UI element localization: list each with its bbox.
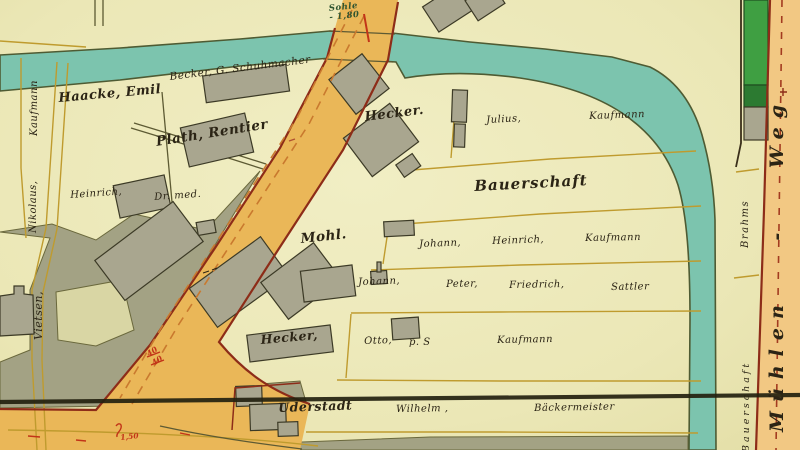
label-bauerschaft-right: Bauerschaft	[742, 361, 752, 450]
label-friedrich-b: Friedrich,	[509, 280, 565, 291]
label-peter-b: Peter,	[446, 279, 478, 290]
label-uderstadt: Uderstadt	[278, 398, 353, 414]
label-wilhelm: Wilhelm ,	[396, 404, 449, 415]
map-drawing	[0, 0, 800, 450]
label-kaufmann-c: Kaufmann	[497, 335, 553, 346]
waterway-depth-note: Sohle - 1,80	[328, 2, 360, 23]
label-nikolaus-left: Nikolaus,	[29, 181, 40, 233]
label-muehlenweg: Mühlen - Weg	[768, 96, 788, 432]
label-kaufmann-top: Kaufmann	[589, 110, 645, 122]
label-johann-a: Johann,	[419, 239, 461, 251]
map-image: Sohle - 1,80 Haacke, Emil Becker, G. Sch…	[0, 0, 800, 450]
label-kaufmann-a: Kaufmann	[585, 233, 641, 244]
label-julius: Julius,	[486, 114, 522, 126]
green-strips	[744, 0, 768, 107]
label-heinrich-a: Heinrich,	[492, 235, 544, 247]
label-johann-b: Johann,	[358, 277, 400, 289]
label-kaufmann-left: Kaufmann	[30, 80, 41, 136]
label-otto: Otto,	[364, 336, 392, 347]
label-vietsen-left: Vietsen,	[33, 291, 45, 340]
label-baeckermeister: Bäckermeister	[534, 403, 615, 415]
label-brahms-right: Brahms	[741, 200, 752, 248]
label-p-s: p. S	[409, 338, 431, 349]
label-sattler-b: Sattler	[611, 282, 649, 293]
